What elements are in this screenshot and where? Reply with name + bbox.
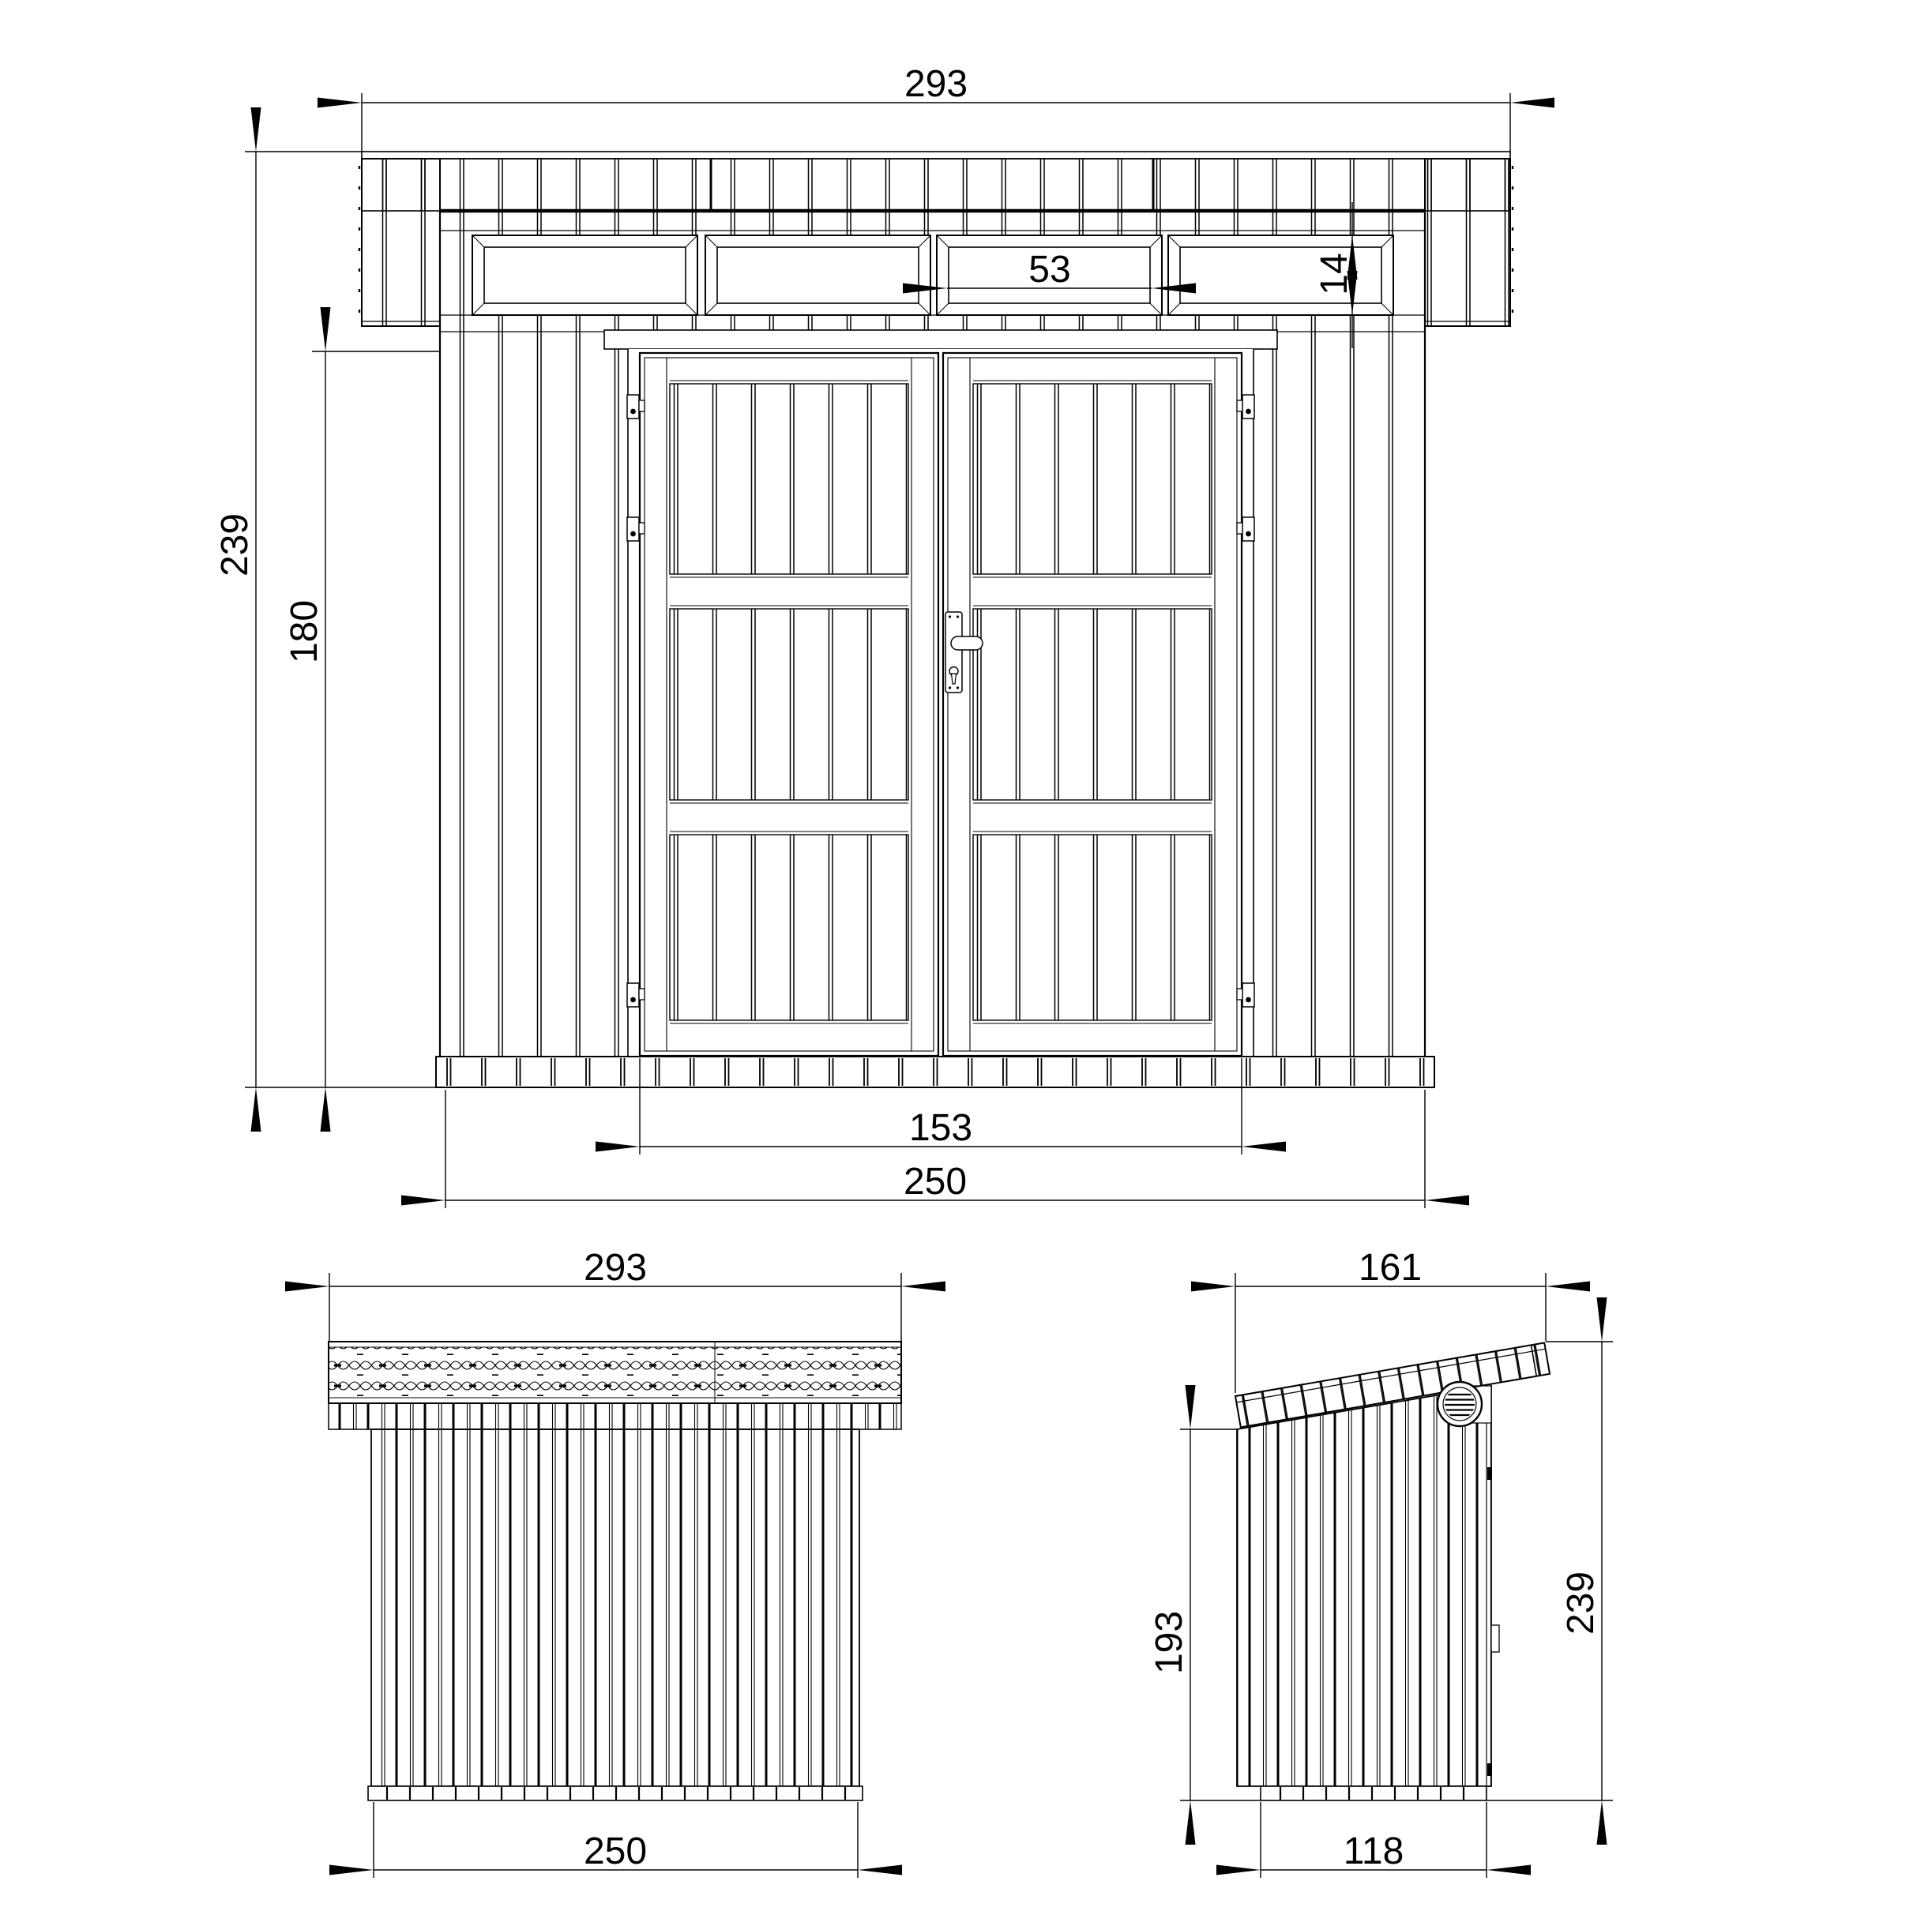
front-view: 293 239 180 53 14 153 bbox=[214, 63, 1513, 1208]
front-roof-return-left bbox=[359, 159, 440, 326]
dim-front-wall-height: 180 bbox=[284, 351, 440, 1087]
dim-label: 293 bbox=[904, 63, 968, 105]
door-handle-lever bbox=[951, 636, 983, 650]
dim-label: 14 bbox=[1314, 253, 1355, 295]
dim-label: 250 bbox=[904, 1161, 967, 1203]
transom-window-4 bbox=[1168, 235, 1393, 315]
double-door bbox=[604, 330, 1277, 1057]
dim-side-base-depth: 118 bbox=[1261, 1802, 1487, 1878]
dim-label: 118 bbox=[1344, 1830, 1404, 1872]
rear-view: 293 250 bbox=[329, 1247, 901, 1878]
side-view: 161 193 239 118 bbox=[1148, 1247, 1613, 1878]
door-head-trim bbox=[604, 330, 1277, 349]
door-right-leaf bbox=[943, 353, 1242, 1056]
side-handle-mark bbox=[1491, 1625, 1499, 1652]
dim-label: 239 bbox=[1560, 1571, 1602, 1635]
side-base-board bbox=[1261, 1786, 1487, 1800]
front-base-board bbox=[436, 1057, 1434, 1087]
dim-rear-roof-width: 293 bbox=[329, 1247, 901, 1342]
rear-base-board bbox=[368, 1786, 863, 1800]
dim-label: 239 bbox=[214, 513, 256, 576]
dim-front-roof-width: 293 bbox=[362, 63, 1510, 152]
rear-roof-band bbox=[329, 1342, 901, 1403]
technical-drawing: 293 239 180 53 14 153 bbox=[0, 0, 1932, 1926]
dim-label: 193 bbox=[1148, 1611, 1190, 1674]
dim-label: 53 bbox=[1028, 249, 1070, 291]
front-roof-return-right bbox=[1425, 159, 1513, 326]
dim-rear-body-width: 250 bbox=[374, 1802, 858, 1878]
side-wall-cladding bbox=[1237, 1386, 1491, 1786]
dim-label: 293 bbox=[584, 1247, 647, 1289]
roof-vent bbox=[1438, 1382, 1482, 1426]
side-hinge-mark bbox=[1487, 1763, 1492, 1776]
rear-wall-cladding bbox=[371, 1429, 859, 1786]
dim-side-front-height: 239 bbox=[1487, 1342, 1613, 1800]
dim-label: 161 bbox=[1359, 1247, 1422, 1289]
roof-felt-texture bbox=[329, 1347, 900, 1398]
drawing-sheet: 293 239 180 53 14 153 bbox=[0, 0, 1932, 1926]
front-roof-fascia bbox=[362, 152, 1510, 211]
rear-fascia-battens bbox=[329, 1403, 901, 1429]
transom-window-2 bbox=[705, 235, 930, 315]
door-left-leaf bbox=[640, 353, 938, 1056]
transom-window-1 bbox=[472, 235, 697, 315]
dim-label: 250 bbox=[584, 1830, 647, 1872]
dim-label: 180 bbox=[284, 600, 325, 663]
side-hinge-mark bbox=[1487, 1467, 1492, 1480]
dim-label: 153 bbox=[909, 1107, 972, 1149]
